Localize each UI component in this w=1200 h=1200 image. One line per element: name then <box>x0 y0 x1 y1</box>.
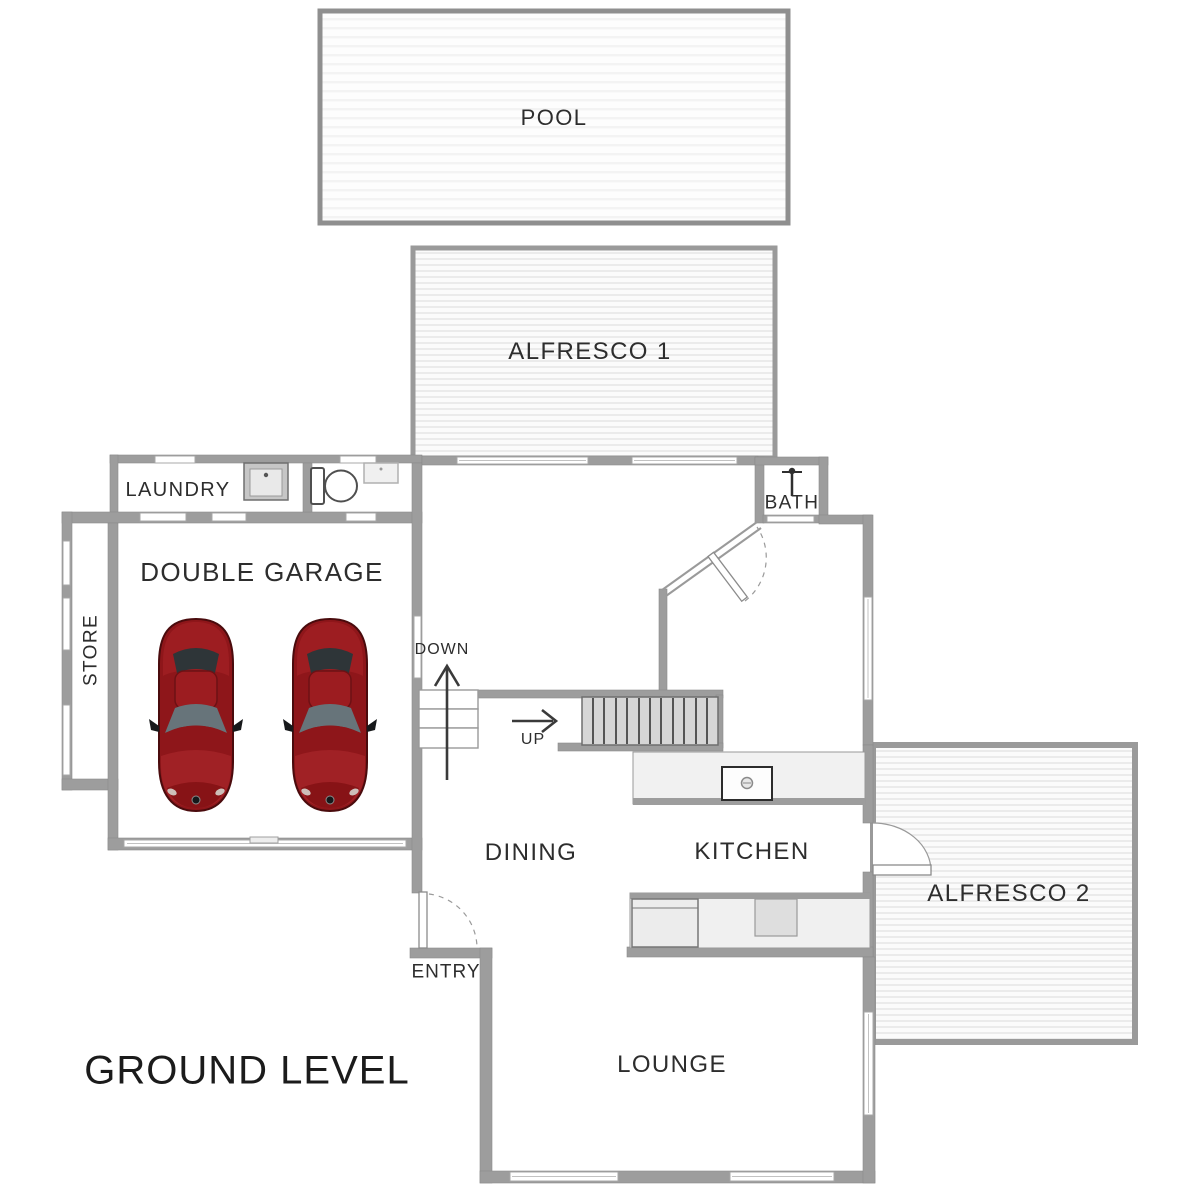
floor-plan: POOL ALFRESCO 1 LAUNDRY BATH DOUBLE GARA… <box>0 0 1200 1200</box>
up-arrow-icon <box>512 710 556 732</box>
double-garage-label: DOUBLE GARAGE <box>140 559 384 585</box>
alfresco1-label: ALFRESCO 1 <box>508 340 671 364</box>
toilet-icon <box>311 468 357 504</box>
stove-icon <box>755 899 797 936</box>
stairs-down-label: DOWN <box>415 642 470 658</box>
entry-door <box>419 892 477 948</box>
vanity-icon <box>364 463 398 483</box>
kitchen-counter <box>630 893 870 948</box>
sink-icon <box>244 463 288 500</box>
laundry-label: LAUNDRY <box>125 480 230 500</box>
car-icon <box>283 619 377 811</box>
lounge-label: LOUNGE <box>617 1053 727 1077</box>
pool-label: POOL <box>521 107 588 129</box>
kitchen-label: KITCHEN <box>694 840 809 864</box>
entry-label: ENTRY <box>411 963 480 982</box>
kitchen-island <box>633 752 865 805</box>
store-label: STORE <box>82 614 101 686</box>
page-title: GROUND LEVEL <box>84 1049 409 1094</box>
car-icon <box>149 619 243 811</box>
dining-label: DINING <box>485 841 577 865</box>
bath-label: BATH <box>765 494 820 513</box>
stairs-up-label: UP <box>521 732 545 748</box>
alfresco2-label: ALFRESCO 2 <box>927 882 1090 906</box>
floor-plan-svg <box>0 0 1200 1200</box>
hall-door <box>708 527 766 601</box>
